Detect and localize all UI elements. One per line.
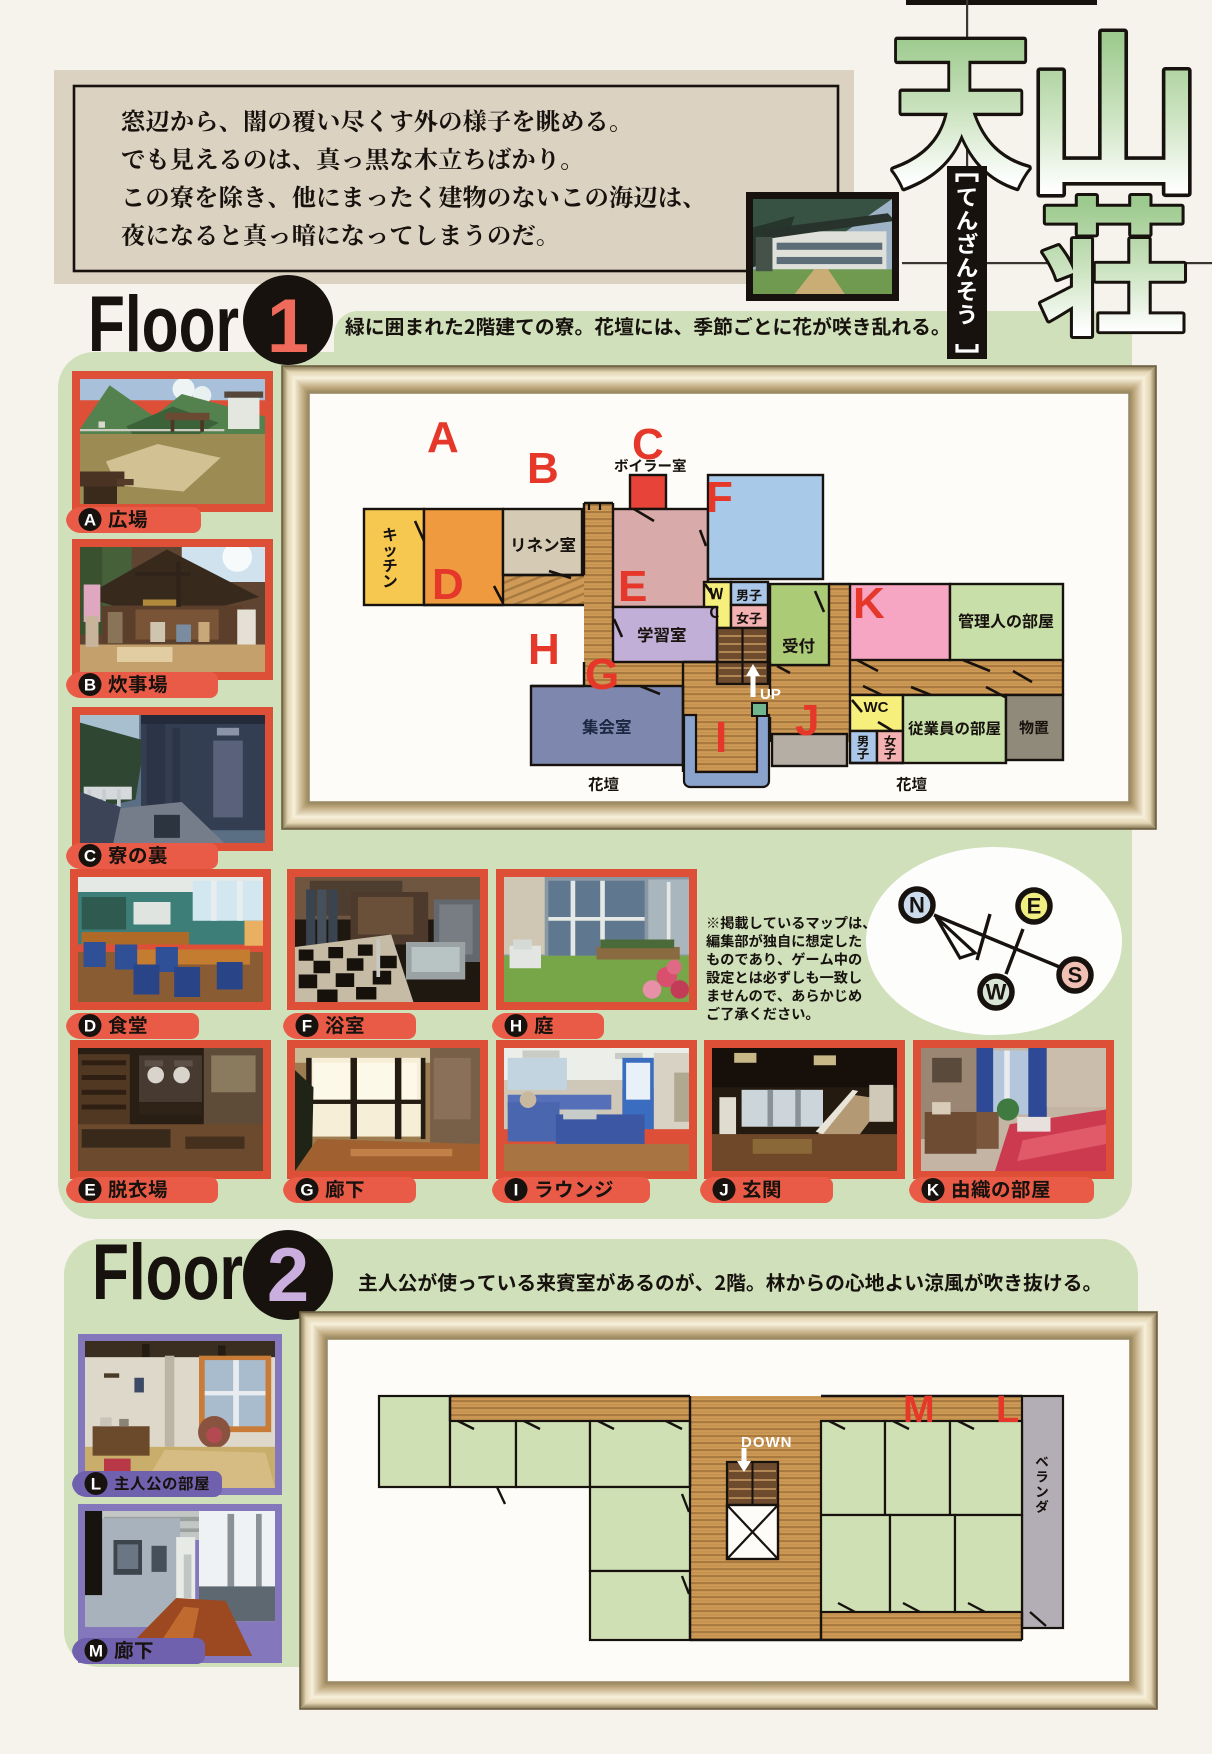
svg-text:DOWN: DOWN: [741, 1434, 793, 1451]
svg-text:I: I: [715, 713, 727, 762]
svg-text:N: N: [909, 893, 925, 918]
svg-text:B: B: [84, 676, 96, 695]
svg-text:UP: UP: [760, 686, 781, 703]
svg-text:M: M: [89, 1642, 103, 1661]
svg-text:E: E: [1027, 894, 1042, 919]
svg-text:1: 1: [267, 284, 309, 369]
svg-text:G: G: [585, 650, 619, 699]
svg-text:H: H: [528, 625, 560, 674]
svg-text:B: B: [527, 444, 559, 493]
svg-text:K: K: [927, 1181, 940, 1200]
svg-text:D: D: [432, 560, 464, 609]
svg-text:2: 2: [267, 1233, 309, 1318]
svg-text:L: L: [91, 1475, 101, 1494]
svg-text:F: F: [706, 473, 733, 522]
svg-text:D: D: [84, 1017, 96, 1036]
svg-text:J: J: [795, 696, 819, 745]
svg-text:E: E: [618, 562, 647, 611]
svg-text:S: S: [1068, 963, 1083, 988]
svg-text:W: W: [986, 980, 1007, 1005]
svg-text:J: J: [719, 1181, 728, 1200]
svg-text:A: A: [84, 511, 96, 530]
svg-text:C: C: [84, 847, 96, 866]
svg-text:Floor: Floor: [92, 1227, 243, 1316]
svg-text:H: H: [510, 1017, 522, 1036]
svg-text:Floor: Floor: [88, 279, 239, 368]
svg-text:L: L: [996, 1389, 1019, 1431]
svg-text:K: K: [853, 579, 885, 628]
svg-text:G: G: [300, 1181, 313, 1200]
svg-text:M: M: [903, 1389, 935, 1431]
svg-text:WC: WC: [864, 699, 889, 716]
svg-text:F: F: [302, 1017, 312, 1036]
svg-text:A: A: [427, 413, 459, 462]
svg-text:I: I: [514, 1181, 519, 1200]
svg-text:E: E: [84, 1181, 95, 1200]
